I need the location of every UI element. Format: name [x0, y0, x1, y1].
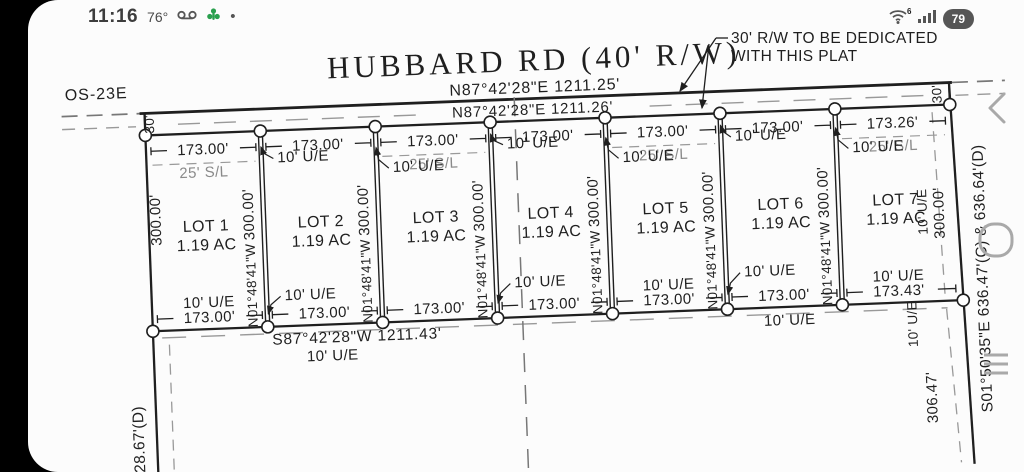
side-dim-left: 300.00'	[147, 194, 166, 246]
lot-1-name: LOT 1	[183, 217, 230, 236]
bearing-d5: N01°48'41"W	[702, 226, 720, 310]
cross-road-label: OS-23E	[64, 85, 128, 104]
lot-2-rear-dim: 173.00'	[298, 304, 350, 323]
lot-7-name: LOT 7	[872, 191, 919, 210]
lot-6-name: LOT 6	[757, 195, 804, 214]
side-dim-d4: 300.00'	[584, 175, 603, 227]
lot-7-front-dim: 173.26'	[866, 114, 918, 133]
road-title: HUBBARD RD (40' R/W)	[326, 35, 741, 86]
strip-width-left: 30'	[142, 115, 158, 134]
ue-right-lower: 10' U/E	[904, 301, 921, 347]
nav-home-button[interactable]	[976, 220, 1016, 265]
status-bar-left: 11:16 76° •	[88, 6, 235, 28]
lot-3-rear-dim: 173.00'	[413, 299, 465, 318]
weather-temp: 76°	[147, 9, 168, 25]
ue-top-d4: 10' U/E	[622, 147, 674, 166]
ue-bottom-d1: 10' U/E	[284, 285, 336, 304]
lot-4-rear-dim: 173.00'	[528, 295, 580, 314]
lot-3-area: 1.19 AC	[406, 227, 466, 246]
side-dim-d6: 300.00'	[814, 166, 833, 218]
lot-4-name: LOT 4	[527, 204, 574, 223]
plat-drawing: HUBBARD RD (40' R/W) N87°42'28"E 1211.25…	[28, 0, 1024, 472]
ue-below-left: 10' U/E	[307, 346, 359, 365]
annotation-line-1: 30' R/W TO BE DEDICATED	[731, 30, 938, 47]
annotation-line-2: WITH THIS PLAT	[731, 48, 858, 65]
bearing-d3: N01°48'41"W	[472, 235, 490, 319]
left-boundary-lower-dim: 328.67'(D)	[130, 406, 150, 472]
lot-5-name: LOT 5	[642, 200, 689, 219]
battery-indicator: 79	[943, 9, 974, 29]
lot-1-rear-dim: 173.00'	[183, 308, 235, 327]
lot-3-name: LOT 3	[412, 208, 459, 227]
ue-top-d1: 10' U/E	[277, 147, 329, 166]
ue-top-d6: 10' U/E	[852, 137, 904, 156]
lot-1-front-dim: 173.00'	[177, 140, 229, 159]
lot-6-area: 1.19 AC	[751, 214, 811, 233]
lot-3-front-dim: 173.00'	[407, 131, 459, 150]
ue-bottom-d5: 10' U/E	[744, 262, 796, 281]
lot-4-area: 1.19 AC	[521, 223, 581, 242]
side-dim-d1: 300.00'	[240, 188, 259, 240]
strip-width-right: 30'	[929, 84, 945, 103]
ue-bottom-d3: 10' U/E	[514, 272, 566, 291]
rear-boundary-bearing: S87°42'28"W 1211.43'	[272, 325, 442, 348]
bearing-d6: N01°48'41"W	[817, 221, 835, 305]
right-lower-dim: 306.47'	[923, 371, 942, 423]
voicemail-icon	[177, 8, 197, 26]
lot-5-rear-dim: 173.00'	[643, 290, 695, 309]
nav-recents-button[interactable]	[980, 348, 1012, 385]
lot-6-rear-dim: 173.00'	[758, 286, 810, 305]
ue-below-right: 10' U/E	[764, 311, 816, 330]
nav-back-button[interactable]	[980, 90, 1014, 131]
bearing-d2: N01°48'41"W	[358, 239, 376, 323]
app-notification-icon	[206, 7, 221, 27]
side-dim-d2: 300.00'	[354, 184, 373, 236]
status-bar-right: 6 79	[888, 7, 974, 30]
bearing-d1: N01°48'41"W	[243, 243, 261, 327]
side-dim-d3: 300.00'	[469, 180, 488, 232]
setback-label-lot1: 25' S/L	[179, 163, 229, 182]
lot-5-front-dim: 173.00'	[637, 123, 689, 142]
ue-top-d3: 10' U/E	[507, 134, 559, 153]
side-dim-right: 300.00'	[930, 187, 949, 239]
lot-5-area: 1.19 AC	[636, 218, 696, 237]
lot-2-name: LOT 2	[297, 213, 344, 232]
wifi-generation-label: 6	[907, 7, 912, 16]
lot-7-area: 1.19 AC	[866, 210, 926, 229]
phone-screen: HUBBARD RD (40' R/W) N87°42'28"E 1211.25…	[28, 0, 1024, 472]
ue-top-d5: 10' U/E	[735, 126, 787, 145]
lot-1-area: 1.19 AC	[176, 236, 236, 255]
side-dim-d5: 300.00'	[699, 171, 718, 223]
ue-top-d2: 10' U/E	[392, 157, 444, 176]
lot-2-area: 1.19 AC	[291, 232, 351, 251]
bearing-d4: N01°48'41"W	[587, 230, 605, 314]
notification-dot-icon: •	[230, 12, 235, 22]
clock: 11:16	[88, 6, 138, 28]
signal-bars-icon	[918, 8, 937, 29]
wifi-icon: 6	[888, 7, 912, 30]
lot-7-rear-dim: 173.43'	[873, 282, 925, 301]
